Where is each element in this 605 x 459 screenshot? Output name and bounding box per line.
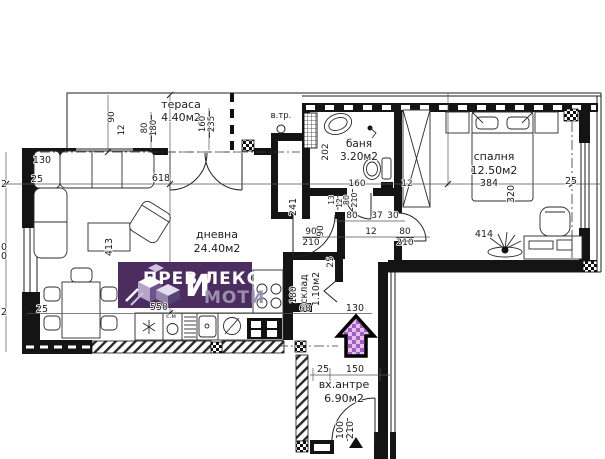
dim-partial: 2 xyxy=(1,179,7,190)
room-area-hall: 6.90м2 xyxy=(324,392,364,405)
dim-label: 180 xyxy=(149,120,159,136)
chair xyxy=(71,268,92,282)
room-label-bath: баня xyxy=(346,138,372,150)
label-vtr: в.тр. xyxy=(271,111,292,121)
vent-pipe-symbol xyxy=(277,125,285,133)
nightstand xyxy=(535,112,558,133)
dim-label: 180 xyxy=(289,286,299,303)
floor-plan-drawing: ПРЕВ И ЛЕКС МОТИ тераса4.40м290128018016… xyxy=(0,0,605,459)
dim-label: 80 xyxy=(399,227,411,237)
room-label-bedroom: спалня xyxy=(474,150,515,163)
sofa xyxy=(60,151,154,188)
dim-label: 160 xyxy=(348,179,365,189)
desk xyxy=(524,236,582,259)
dim-label: 12 xyxy=(365,227,376,237)
dim-label: 384 xyxy=(480,178,498,189)
column-marker xyxy=(211,342,222,353)
dim-label: 320 xyxy=(506,185,517,203)
room-area-living: 24.40м2 xyxy=(194,242,241,255)
chair xyxy=(101,316,117,330)
column-marker xyxy=(564,109,578,121)
chair xyxy=(44,287,60,301)
dim-label: 210 xyxy=(350,192,359,207)
entrance-direction-arrow xyxy=(338,316,374,356)
nightstand xyxy=(446,112,469,133)
dim-label: 25 xyxy=(31,174,43,185)
label-washing-machine: с.м xyxy=(166,313,176,320)
dim-partial: 0 xyxy=(1,251,7,262)
floor-plan-page: ПРЕВ И ЛЕКС МОТИ тераса4.40м290128018016… xyxy=(0,0,605,459)
dim-label: 235 xyxy=(207,116,217,132)
logo-text-line2: МОТИ xyxy=(204,288,265,308)
plant xyxy=(488,232,522,257)
room-area-bedroom: 12.50м2 xyxy=(471,164,518,177)
dim-label: 550 xyxy=(150,302,168,313)
dim-label: 202 xyxy=(321,143,331,160)
stove xyxy=(247,318,282,339)
room-area-storage: 1.10м2 xyxy=(311,272,322,306)
window-bedroom-right xyxy=(579,143,590,228)
column-marker xyxy=(296,441,308,452)
dim-label: 12 xyxy=(117,125,127,136)
shaft-grid xyxy=(304,113,317,148)
dim-label: 30 xyxy=(387,211,399,221)
dim-label: 413 xyxy=(104,238,115,256)
dim-label: 210 xyxy=(345,421,356,439)
column-marker xyxy=(295,341,306,352)
agency-logo: ПРЕВ И ЛЕКС МОТИ xyxy=(118,262,265,308)
bath-sink xyxy=(321,110,354,138)
chair xyxy=(44,316,60,330)
door-storage-bifold xyxy=(324,280,337,302)
room-label-living: дневна xyxy=(196,228,238,241)
dim-label: 80 xyxy=(346,211,358,221)
dim-label: 25 xyxy=(326,256,336,267)
dim-label: 25 xyxy=(565,176,577,187)
dim-label: 68 xyxy=(299,304,311,314)
armchair xyxy=(127,199,172,245)
room-label-storage: склад xyxy=(299,274,310,304)
room-area-terrace: 4.40м2 xyxy=(161,111,201,124)
wardrobe xyxy=(403,110,430,207)
dim-label: 618 xyxy=(152,173,170,184)
dim-label: 12 xyxy=(401,179,412,189)
dim-label: 90 xyxy=(107,111,117,123)
room-label-terrace: тераса xyxy=(161,98,201,111)
dim-label: 90 xyxy=(316,225,326,237)
dim-partial: 2 xyxy=(1,307,7,318)
logo-text-part2: ЛЕКС xyxy=(204,269,260,289)
dim-label: 25 xyxy=(36,304,48,315)
dim-label: 37 xyxy=(371,211,382,221)
kitchen-sink xyxy=(199,316,216,337)
desk-chair xyxy=(540,207,570,236)
dim-label: 414 xyxy=(475,229,493,240)
dim-label: 210 xyxy=(302,238,319,248)
dim-label: 241 xyxy=(288,198,299,216)
dim-label: 210 xyxy=(396,238,413,248)
room-label-hall: вх.антре xyxy=(319,378,370,391)
dim-label: 130 xyxy=(346,303,364,314)
column-marker xyxy=(583,261,597,272)
room-area-bath: 3.20м2 xyxy=(340,151,378,163)
chair xyxy=(101,287,117,301)
shower-fixture xyxy=(368,126,377,139)
dim-label: 130 xyxy=(33,155,51,166)
dim-label: 25 xyxy=(317,364,329,375)
dining-table xyxy=(62,282,100,338)
dim-label: 150 xyxy=(346,364,364,375)
column-marker xyxy=(242,140,254,151)
